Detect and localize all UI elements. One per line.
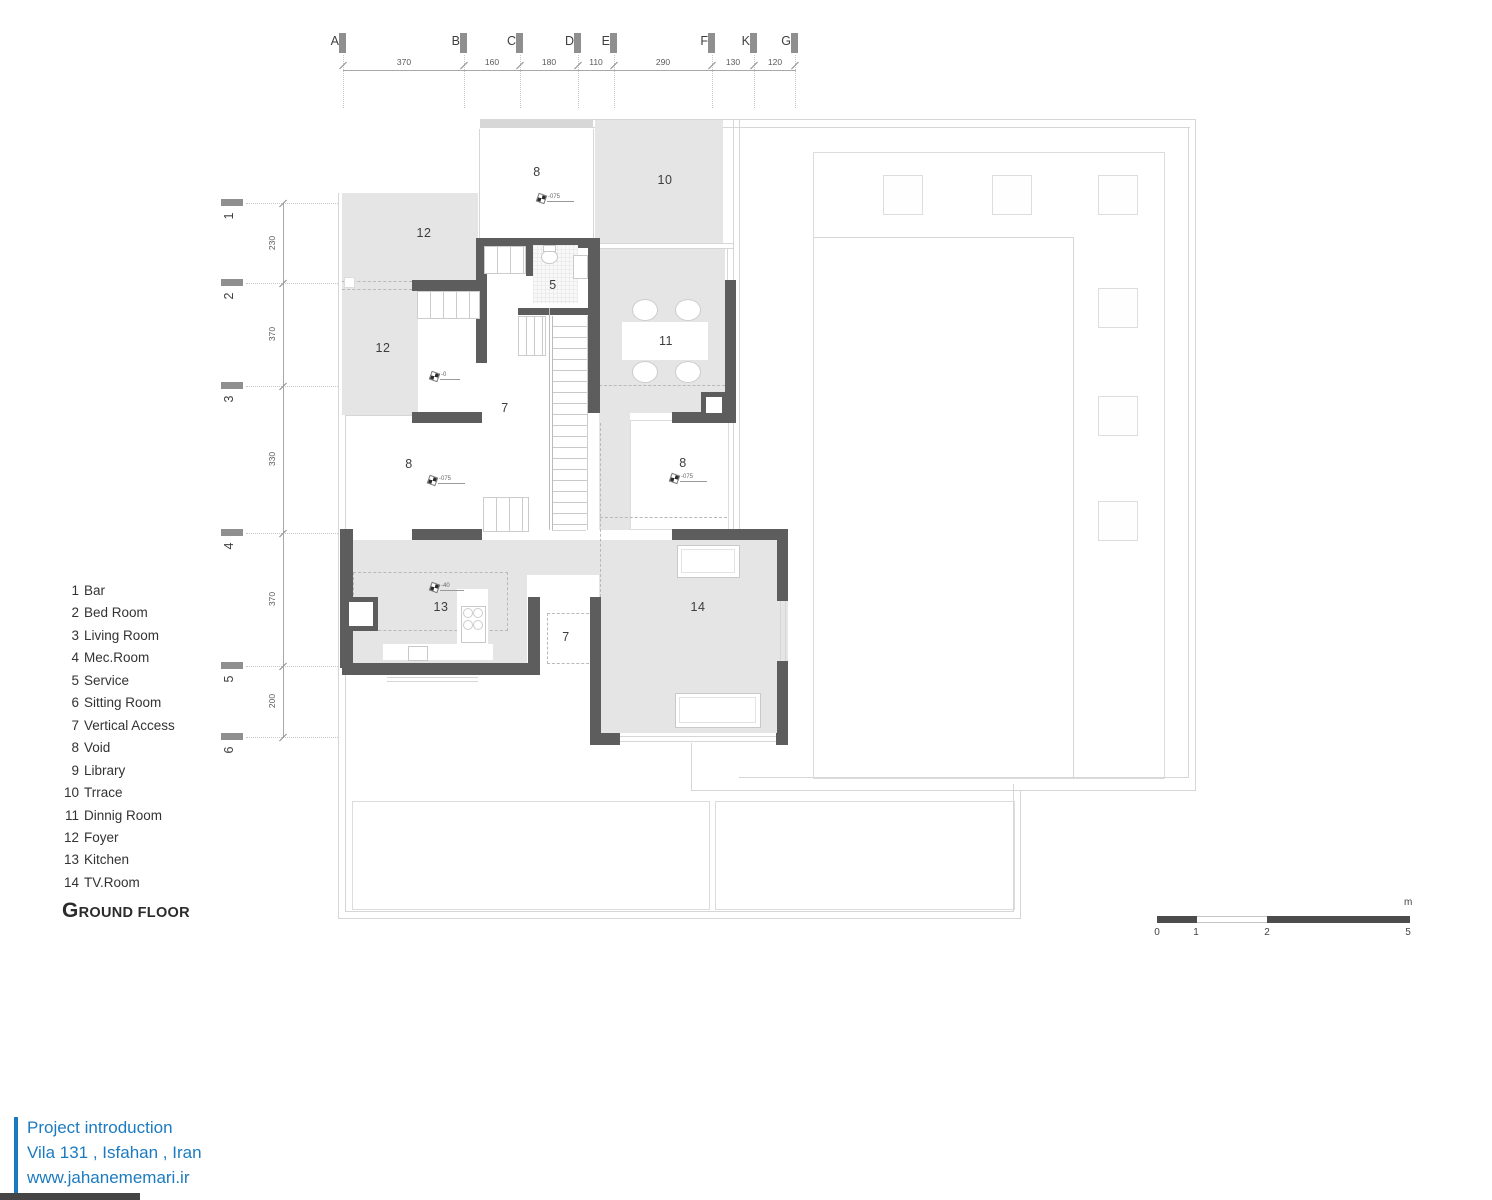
- scale-unit: m: [1404, 897, 1412, 908]
- foyer-upper-fill: [342, 193, 478, 283]
- legend-item-number: 11: [62, 805, 79, 827]
- scale-tick-label: 0: [1154, 927, 1160, 938]
- dimension-value: 180: [542, 57, 556, 67]
- bottom-edge-strip: [0, 1193, 140, 1200]
- dimension-value: 230: [267, 236, 277, 250]
- lift-dashed: [547, 613, 594, 664]
- grid-column-bar: [791, 33, 798, 53]
- room-number-label: 8: [679, 456, 686, 470]
- legend-item: 13 Kitchen: [62, 849, 175, 871]
- toilet-tank: [543, 245, 556, 252]
- legend-item-label: Sitting Room: [84, 692, 161, 714]
- room-number-label: 7: [562, 630, 569, 644]
- grid-column-label: D: [559, 34, 574, 48]
- floor-plan-sheet: 810125121178813714 -075 -0 -075 -075: [0, 0, 1492, 1200]
- grid-column-label: F: [693, 34, 708, 48]
- level-marker: -075: [429, 476, 465, 484]
- legend-item: 10 Trrace: [62, 782, 175, 804]
- legend-item-number: 5: [62, 670, 79, 692]
- legend-item-label: Kitchen: [84, 849, 129, 871]
- stair-closet: [483, 497, 529, 532]
- dimension-value: 370: [267, 592, 277, 606]
- level-marker-icon: [537, 194, 546, 203]
- footer-website-link[interactable]: www.jahanememari.ir: [27, 1168, 190, 1188]
- room-number-label: 13: [434, 600, 449, 614]
- legend-item: 8 Void: [62, 737, 175, 759]
- courtyard-column: [1098, 288, 1138, 328]
- grid-column-bar: [460, 33, 467, 53]
- top-dimension-line: [343, 70, 796, 71]
- footer-project-intro: Project introduction: [27, 1118, 173, 1138]
- grid-row-bar: [221, 733, 243, 740]
- legend-item-number: 4: [62, 647, 79, 669]
- level-marker-text: -40: [440, 583, 464, 591]
- courtyard-outline: [813, 152, 1165, 779]
- grid-column-bar: [516, 33, 523, 53]
- level-marker-text: -075: [547, 194, 574, 202]
- grid-column-label: C: [501, 34, 516, 48]
- legend-item-number: 10: [62, 782, 79, 804]
- dimension-value: 120: [768, 57, 782, 67]
- legend-item: 12 Foyer: [62, 827, 175, 849]
- legend-item-number: 14: [62, 872, 79, 894]
- foyer-wardrobe: [417, 291, 480, 319]
- drive-outline: [715, 801, 1015, 910]
- grid-column-bar: [708, 33, 715, 53]
- level-marker: -075: [671, 474, 707, 482]
- level-marker-icon: [670, 474, 679, 483]
- dimension-value: 370: [397, 57, 411, 67]
- grid-column-bar: [339, 33, 346, 53]
- dimension-value: 290: [656, 57, 670, 67]
- grid-row-label: 6: [222, 743, 236, 757]
- grid-column-bar: [610, 33, 617, 53]
- legend-item: 6 Sitting Room: [62, 692, 175, 714]
- legend-item-label: Void: [84, 737, 110, 759]
- level-marker-icon: [430, 583, 439, 592]
- room-number-label: 12: [376, 341, 391, 355]
- level-marker-text: -075: [438, 476, 465, 484]
- grid-row-label: 5: [222, 672, 236, 686]
- scale-tick-label: 2: [1264, 927, 1270, 938]
- scale-tick-label: 1: [1193, 927, 1199, 938]
- kitchen-window-box: [344, 597, 378, 631]
- grid-column-label: G: [776, 34, 791, 48]
- kitchen-sink: [408, 646, 428, 661]
- legend-item-number: 12: [62, 827, 79, 849]
- courtyard-column: [1098, 501, 1138, 541]
- legend-item: 3 Living Room: [62, 625, 175, 647]
- legend-item-number: 1: [62, 580, 79, 602]
- level-marker: -075: [538, 194, 574, 202]
- grid-row-label: 3: [222, 392, 236, 406]
- grid-column-label: K: [735, 34, 750, 48]
- legend-item-label: Living Room: [84, 625, 159, 647]
- level-marker: -0: [431, 372, 460, 380]
- dining-chair: [632, 361, 658, 383]
- room-number-label: 7: [501, 401, 508, 415]
- level-marker-icon: [430, 372, 439, 381]
- room-number-label: 8: [405, 457, 412, 471]
- legend-item-label: Foyer: [84, 827, 119, 849]
- legend-item-label: Library: [84, 760, 125, 782]
- kitchen-counter: [383, 644, 493, 660]
- room-number-label: 10: [658, 173, 673, 187]
- dining-chair: [632, 299, 658, 321]
- grid-column-bar: [574, 33, 581, 53]
- grid-column-bar: [750, 33, 757, 53]
- grid-row-bar: [221, 529, 243, 536]
- legend-item-label: Trrace: [84, 782, 123, 804]
- legend-item-label: Service: [84, 670, 129, 692]
- legend-item-label: Mec.Room: [84, 647, 149, 669]
- grid-row-bar: [221, 662, 243, 669]
- legend-item: 14 TV.Room: [62, 872, 175, 894]
- dining-chair: [675, 361, 701, 383]
- dimension-value: 130: [726, 57, 740, 67]
- footer-project-location: Vila 131 , Isfahan , Iran: [27, 1143, 202, 1163]
- drawing-title: GROUND FLOOR: [62, 899, 190, 923]
- grid-row-bar: [221, 199, 243, 206]
- legend-item-number: 3: [62, 625, 79, 647]
- grid-column-label: A: [324, 34, 339, 48]
- lawn-outline: [352, 801, 710, 910]
- stair-flight-main: [552, 316, 588, 530]
- legend-item: 2 Bed Room: [62, 602, 175, 624]
- level-marker-text: -075: [680, 474, 707, 482]
- room-number-label: 14: [691, 600, 706, 614]
- legend-item: 4 Mec.Room: [62, 647, 175, 669]
- hall-strip-fill: [599, 413, 630, 530]
- room-legend: 1 Bar 2 Bed Room 3 Living Room 4 Mec.Roo…: [62, 580, 175, 894]
- dimension-value: 330: [267, 452, 277, 466]
- dimension-value: 200: [267, 694, 277, 708]
- toilet: [541, 250, 558, 264]
- courtyard-column: [1098, 175, 1138, 215]
- room-number-label: 11: [659, 334, 673, 348]
- stair-rail: [549, 308, 550, 530]
- legend-item: 5 Service: [62, 670, 175, 692]
- footer-accent-bar: [14, 1117, 18, 1193]
- legend-item-label: Bar: [84, 580, 105, 602]
- legend-item: 11 Dinnig Room: [62, 805, 175, 827]
- legend-item-label: Bed Room: [84, 602, 148, 624]
- courtyard-column: [883, 175, 923, 215]
- legend-item: 1 Bar: [62, 580, 175, 602]
- legend-item-number: 9: [62, 760, 79, 782]
- level-marker: -40: [431, 583, 464, 591]
- legend-item-number: 6: [62, 692, 79, 714]
- level-marker-text: -0: [440, 372, 460, 380]
- level-marker-icon: [428, 476, 437, 485]
- legend-item-number: 2: [62, 602, 79, 624]
- legend-item-label: TV.Room: [84, 872, 140, 894]
- legend-item-label: Vertical Access: [84, 715, 175, 737]
- legend-item-number: 8: [62, 737, 79, 759]
- corridor-fill: [352, 540, 599, 575]
- legend-item-number: 7: [62, 715, 79, 737]
- grid-row-label: 2: [222, 289, 236, 303]
- legend-item: 7 Vertical Access: [62, 715, 175, 737]
- room-number-label: 8: [533, 165, 540, 179]
- grid-row-label: 1: [222, 209, 236, 223]
- courtyard-column: [992, 175, 1032, 215]
- grid-column-label: E: [595, 34, 610, 48]
- legend-item: 9 Library: [62, 760, 175, 782]
- grid-column-label: B: [445, 34, 460, 48]
- door-jamb-detail: [701, 392, 727, 418]
- room-number-label: 12: [417, 226, 432, 240]
- dining-chair: [675, 299, 701, 321]
- dimension-value: 370: [267, 327, 277, 341]
- sink: [573, 255, 588, 279]
- service-closet: [484, 246, 526, 274]
- grid-row-bar: [221, 382, 243, 389]
- grid-row-bar: [221, 279, 243, 286]
- dimension-value: 160: [485, 57, 499, 67]
- legend-item-number: 13: [62, 849, 79, 871]
- grid-row-label: 4: [222, 539, 236, 553]
- scale-tick-label: 5: [1405, 927, 1411, 938]
- courtyard-column: [1098, 396, 1138, 436]
- dimension-value: 110: [589, 57, 603, 67]
- legend-item-label: Dinnig Room: [84, 805, 162, 827]
- roof-strip: [480, 119, 593, 128]
- threshold-box: [344, 277, 355, 288]
- room-number-label: 5: [549, 278, 556, 292]
- stair-flight-upper: [518, 316, 546, 356]
